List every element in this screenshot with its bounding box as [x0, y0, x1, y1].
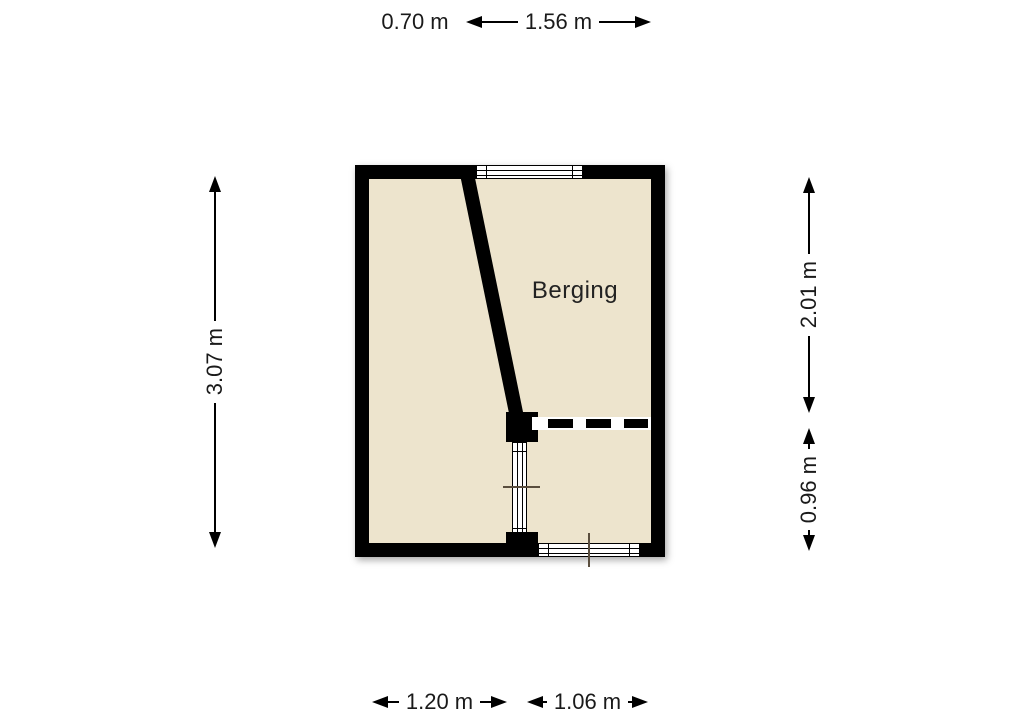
- arrowhead-up-icon: [209, 176, 221, 192]
- dim-label: 1.20 m: [406, 689, 473, 715]
- dim-label: 1.56 m: [525, 9, 592, 35]
- wall-right: [651, 165, 665, 557]
- room-label-berging: Berging: [532, 277, 618, 305]
- arrowhead-up-icon: [803, 177, 815, 193]
- dim-label: 1.06 m: [554, 689, 621, 715]
- dim-bottom-1-20: 1.20 m: [372, 690, 507, 714]
- dim-top-1-56: 1.56 m: [466, 10, 651, 34]
- dim-top-0-70: 0.70 m: [379, 10, 451, 34]
- arrowhead-left-icon: [466, 16, 482, 28]
- arrowhead-right-icon: [491, 696, 507, 708]
- window-marker-vertical: [588, 533, 590, 567]
- dim-right-2-01: 2.01 m: [797, 177, 821, 413]
- dim-label: 0.70 m: [381, 9, 448, 35]
- dim-label: 0.96 m: [796, 456, 822, 523]
- arrowhead-down-icon: [803, 397, 815, 413]
- wall-left: [355, 165, 369, 557]
- dim-line: [543, 701, 547, 703]
- dim-line: [214, 403, 216, 532]
- arrowhead-up-icon: [803, 428, 815, 444]
- dim-right-0-96: 0.96 m: [797, 428, 821, 551]
- dim-line: [808, 336, 810, 397]
- dim-bottom-1-06: 1.06 m: [527, 690, 648, 714]
- window-divider: [512, 442, 527, 538]
- arrowhead-down-icon: [803, 535, 815, 551]
- dim-line: [599, 21, 635, 23]
- dim-line: [808, 444, 810, 449]
- arrowhead-right-icon: [635, 16, 651, 28]
- dim-line: [482, 21, 518, 23]
- dim-line: [480, 701, 491, 703]
- dim-line: [214, 192, 216, 321]
- interior-diagonal-wall: [459, 168, 523, 418]
- window-top: [476, 165, 583, 179]
- dim-line: [388, 701, 399, 703]
- dim-left-3-07: 3.07 m: [203, 176, 227, 548]
- arrowhead-left-icon: [527, 696, 543, 708]
- floorplan-canvas: Berging: [355, 165, 665, 557]
- dim-label: 2.01 m: [796, 261, 822, 328]
- dim-line: [808, 193, 810, 254]
- window-marker-horizontal: [503, 486, 540, 488]
- arrowhead-left-icon: [372, 696, 388, 708]
- dashed-wall-opening: [532, 417, 651, 430]
- dim-label: 3.07 m: [202, 328, 228, 395]
- arrowhead-right-icon: [632, 696, 648, 708]
- wall-bottom-block: [506, 532, 538, 557]
- arrowhead-down-icon: [209, 532, 221, 548]
